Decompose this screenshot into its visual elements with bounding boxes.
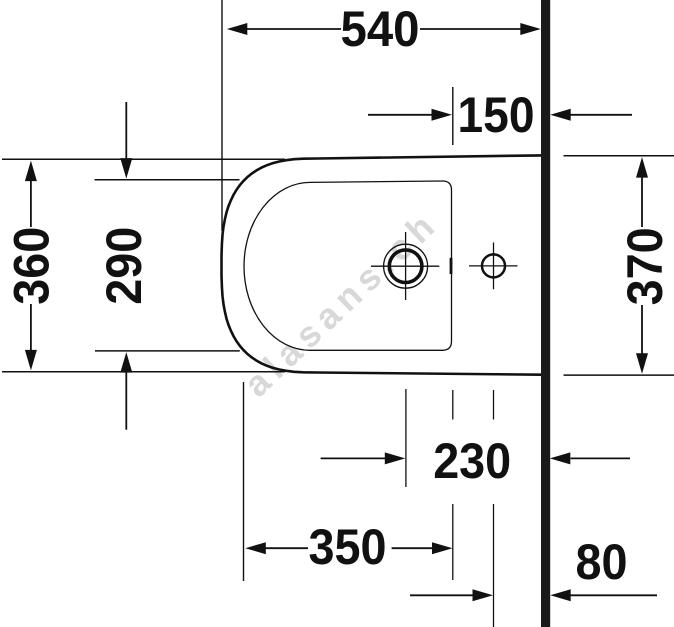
svg-text:370: 370 [617,227,673,305]
svg-text:350: 350 [309,519,387,575]
svg-text:230: 230 [433,433,511,489]
svg-text:540: 540 [341,1,420,57]
svg-text:150: 150 [458,87,535,143]
svg-text:80: 80 [576,534,628,590]
svg-text:290: 290 [96,227,152,305]
svg-text:alasans.ch: alasans.ch [236,206,442,404]
svg-text:360: 360 [4,227,60,305]
